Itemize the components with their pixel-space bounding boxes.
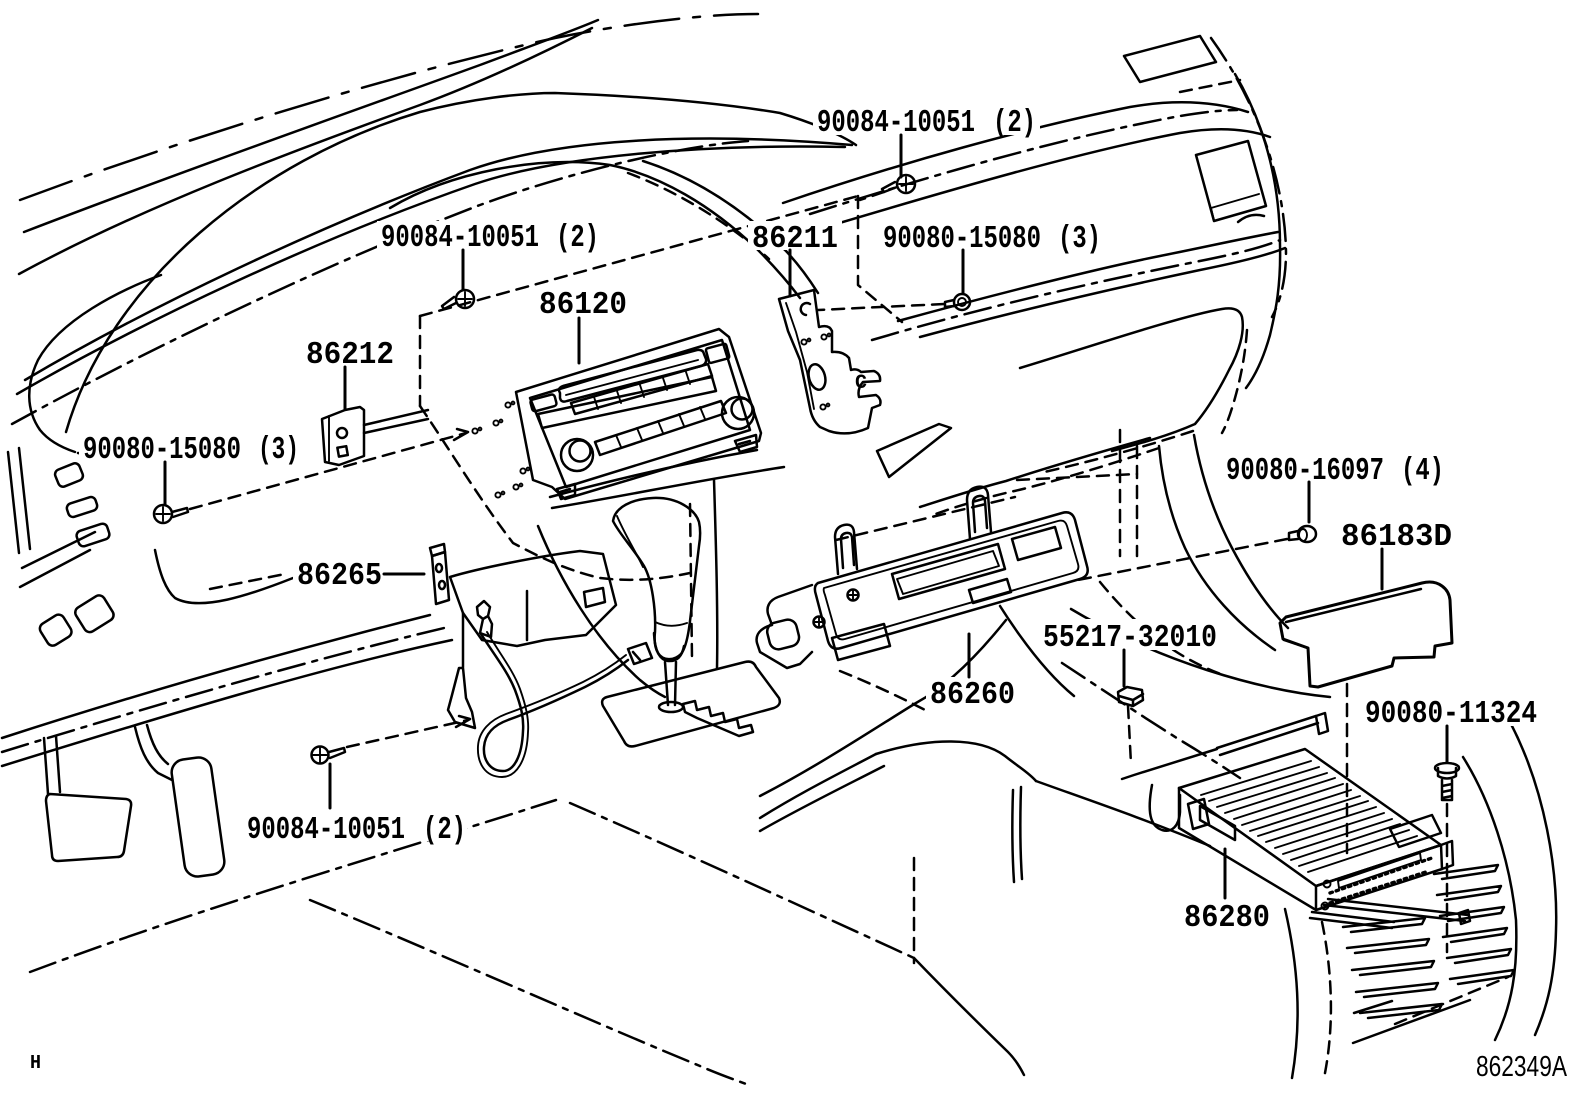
svg-text:86120: 86120 bbox=[539, 288, 627, 323]
svg-text:86183D: 86183D bbox=[1341, 520, 1452, 555]
svg-text:(2): (2) bbox=[556, 221, 599, 256]
svg-text:(2): (2) bbox=[993, 106, 1036, 141]
svg-text:H: H bbox=[30, 1052, 41, 1074]
svg-text:86212: 86212 bbox=[306, 338, 394, 373]
svg-text:86265: 86265 bbox=[297, 559, 382, 594]
svg-text:(3): (3) bbox=[1058, 222, 1101, 257]
svg-text:(4): (4) bbox=[1401, 454, 1444, 489]
svg-text:862349A: 862349A bbox=[1476, 1051, 1568, 1083]
svg-text:86280: 86280 bbox=[1184, 901, 1270, 936]
svg-text:55217-32010: 55217-32010 bbox=[1043, 621, 1217, 656]
svg-text:86211: 86211 bbox=[752, 222, 838, 257]
svg-text:(2): (2) bbox=[423, 813, 466, 848]
svg-text:(3): (3) bbox=[258, 433, 299, 468]
svg-text:90080-11324: 90080-11324 bbox=[1365, 697, 1537, 732]
svg-text:90080-15080: 90080-15080 bbox=[83, 433, 241, 468]
svg-text:86260: 86260 bbox=[930, 678, 1015, 713]
svg-text:90080-16097: 90080-16097 bbox=[1226, 454, 1384, 489]
svg-text:90084-10051: 90084-10051 bbox=[247, 813, 405, 848]
svg-text:90084-10051: 90084-10051 bbox=[817, 106, 975, 141]
svg-text:C: C bbox=[855, 372, 867, 395]
svg-text:90084-10051: 90084-10051 bbox=[381, 221, 539, 256]
